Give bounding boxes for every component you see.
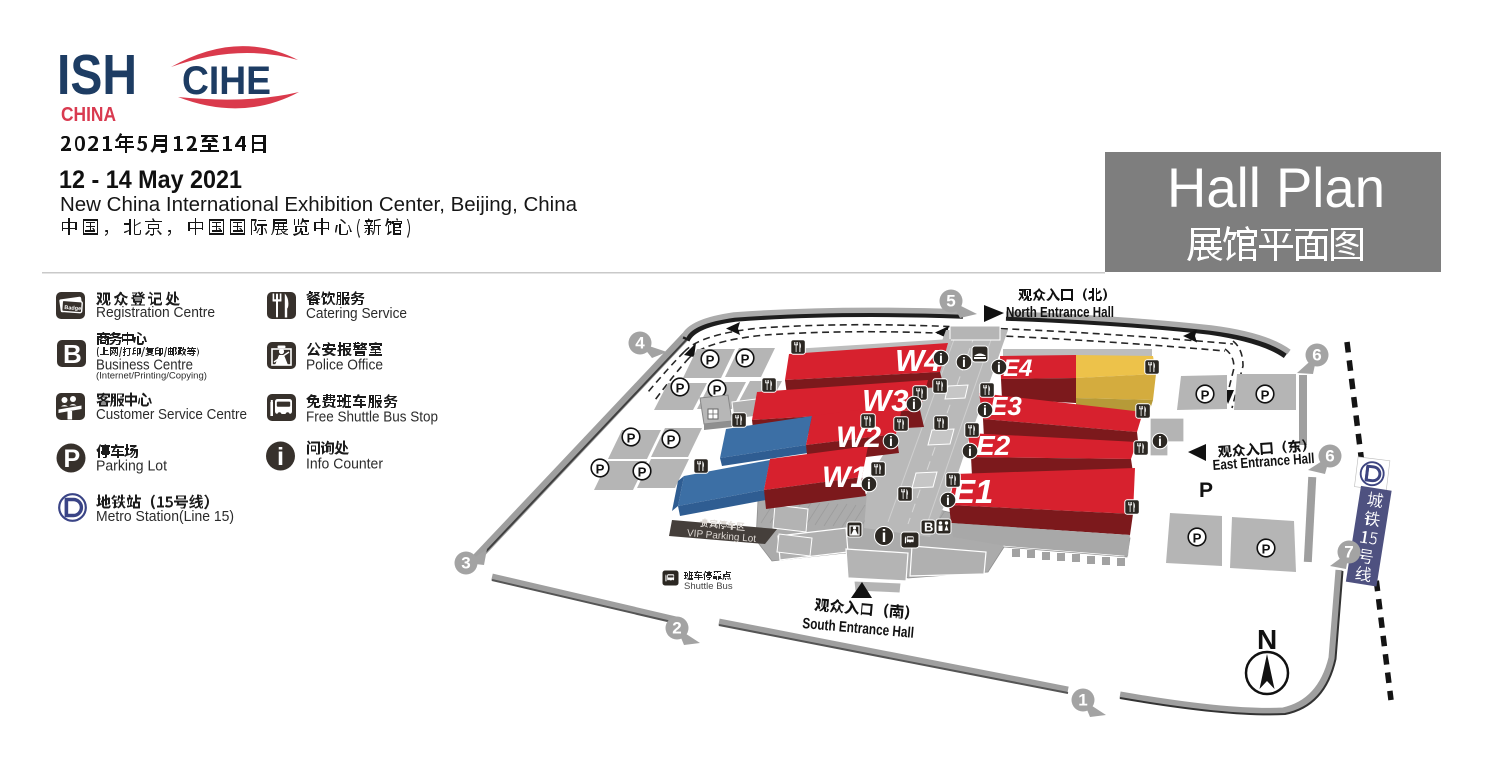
svg-text:Police Office: Police Office bbox=[306, 357, 383, 374]
svg-text:E3: E3 bbox=[990, 391, 1022, 421]
svg-text:7: 7 bbox=[1344, 543, 1353, 562]
svg-text:P: P bbox=[1262, 542, 1271, 557]
svg-text:Registration Centre: Registration Centre bbox=[96, 305, 215, 321]
svg-text:i: i bbox=[946, 492, 950, 508]
svg-text:i: i bbox=[277, 443, 284, 471]
svg-text:3: 3 bbox=[461, 554, 470, 573]
svg-text:P: P bbox=[64, 445, 81, 473]
svg-text:i: i bbox=[962, 354, 966, 370]
svg-text:6: 6 bbox=[1312, 346, 1321, 365]
svg-text:ISH: ISH bbox=[57, 43, 137, 107]
svg-text:W3: W3 bbox=[862, 383, 909, 418]
svg-text:B: B bbox=[63, 339, 82, 369]
svg-text:Parking Lot: Parking Lot bbox=[96, 458, 168, 475]
svg-text:N: N bbox=[1257, 624, 1277, 655]
svg-text:(Internet/Printing/Copying): (Internet/Printing/Copying) bbox=[96, 371, 207, 382]
svg-text:i: i bbox=[1158, 433, 1162, 449]
svg-text:i: i bbox=[912, 396, 916, 412]
svg-text:P: P bbox=[706, 353, 715, 368]
svg-text:Customer Service Centre: Customer Service Centre bbox=[96, 406, 247, 423]
svg-text:5: 5 bbox=[946, 292, 955, 311]
svg-text:P: P bbox=[741, 352, 750, 367]
svg-text:P: P bbox=[1261, 388, 1270, 403]
svg-text:1: 1 bbox=[1078, 691, 1087, 710]
svg-text:Free Shuttle Bus Stop: Free Shuttle Bus Stop bbox=[306, 409, 438, 426]
svg-text:i: i bbox=[867, 476, 871, 492]
svg-text:P: P bbox=[676, 381, 685, 396]
svg-text:2: 2 bbox=[672, 619, 681, 638]
svg-text:i: i bbox=[968, 443, 972, 459]
svg-text:Hall Plan: Hall Plan bbox=[1167, 156, 1385, 219]
svg-text:Metro Station(Line 15): Metro Station(Line 15) bbox=[96, 508, 234, 525]
svg-text:4: 4 bbox=[635, 334, 645, 353]
svg-text:P: P bbox=[596, 462, 605, 477]
svg-text:12 - 14 May 2021: 12 - 14 May 2021 bbox=[59, 166, 242, 194]
svg-text:P: P bbox=[1199, 479, 1213, 502]
svg-text:E4: E4 bbox=[1003, 355, 1032, 382]
svg-text:B: B bbox=[924, 520, 933, 535]
svg-text:P: P bbox=[713, 383, 722, 398]
svg-text:W1: W1 bbox=[822, 461, 867, 494]
svg-text:E2: E2 bbox=[976, 430, 1011, 461]
svg-text:i: i bbox=[939, 350, 943, 366]
svg-text:i: i bbox=[983, 402, 987, 418]
svg-text:New China International Exhibi: New China International Exhibition Cente… bbox=[60, 194, 578, 216]
svg-text:P: P bbox=[1193, 531, 1202, 546]
svg-text:i: i bbox=[889, 433, 893, 449]
svg-text:Info Counter: Info Counter bbox=[306, 456, 383, 473]
svg-text:P: P bbox=[627, 431, 636, 446]
svg-text:Shuttle Bus: Shuttle Bus bbox=[684, 581, 733, 592]
svg-text:P: P bbox=[638, 465, 647, 480]
svg-text:North Entrance Hall: North Entrance Hall bbox=[1006, 305, 1114, 321]
svg-text:i: i bbox=[882, 527, 887, 546]
svg-text:P: P bbox=[667, 433, 676, 448]
svg-text:CHINA: CHINA bbox=[61, 104, 116, 126]
svg-text:CIHE: CIHE bbox=[182, 59, 271, 103]
svg-text:P: P bbox=[1201, 388, 1210, 403]
svg-text:Badge: Badge bbox=[64, 305, 81, 312]
svg-text:6: 6 bbox=[1325, 447, 1334, 466]
svg-text:Catering Service: Catering Service bbox=[306, 306, 407, 322]
svg-text:i: i bbox=[997, 359, 1001, 375]
